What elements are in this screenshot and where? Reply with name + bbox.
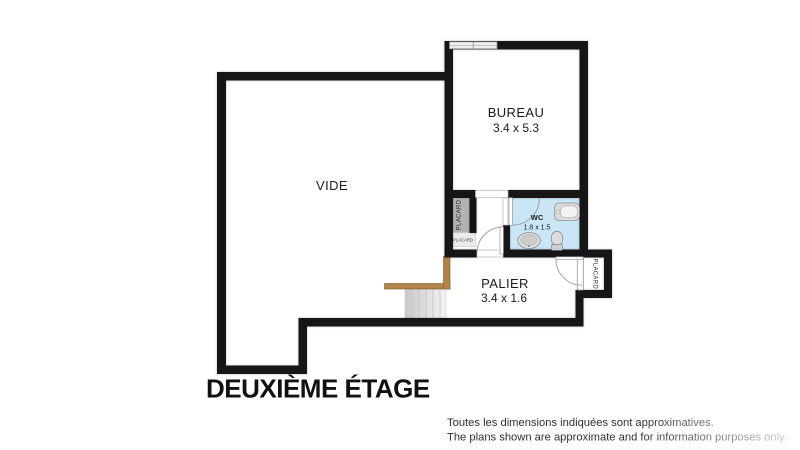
doorway-bureau [476, 191, 509, 198]
wc-label: WC [531, 213, 544, 222]
wc-door-leaf [509, 198, 512, 225]
doorway-wc [503, 198, 508, 225]
hall-door-arc [477, 227, 502, 253]
vide-label: VIDE [316, 178, 348, 193]
palier-label: PALIER [481, 276, 529, 291]
palier-dimensions: 3.4 x 1.6 [481, 291, 527, 305]
disclaimer-fade-overlay [635, 409, 800, 448]
closet-hall-small-label: PLACARD [453, 238, 473, 243]
staircase [385, 257, 451, 319]
floorplan-page: VIDE BUREAU 3.4 x 5.3 WC 1.8 x 1.5 PALIE… [0, 0, 800, 450]
floor-title: DEUXIÈME ÉTAGE [206, 374, 430, 404]
wc-dimensions: 1.8 x 1.5 [524, 225, 551, 232]
floorplan-canvas: VIDE BUREAU 3.4 x 5.3 WC 1.8 x 1.5 PALIE… [0, 0, 800, 450]
sink-icon [518, 233, 540, 249]
palier-closet-door [556, 257, 583, 290]
closet-palier-label: PLACARD [592, 259, 598, 290]
bureau-dimensions: 3.4 x 5.3 [493, 121, 539, 135]
hall-door-leaf [500, 227, 503, 254]
doorway-palier-hall [477, 250, 503, 257]
stair-railing [385, 257, 451, 290]
closet-hall-tall-label: PLACARD [457, 199, 463, 230]
window [450, 42, 498, 49]
palier-closet-door-leaf [556, 257, 583, 260]
bathtub-icon [555, 203, 580, 221]
toilet-icon [551, 231, 563, 250]
bureau-label: BUREAU [488, 105, 545, 120]
